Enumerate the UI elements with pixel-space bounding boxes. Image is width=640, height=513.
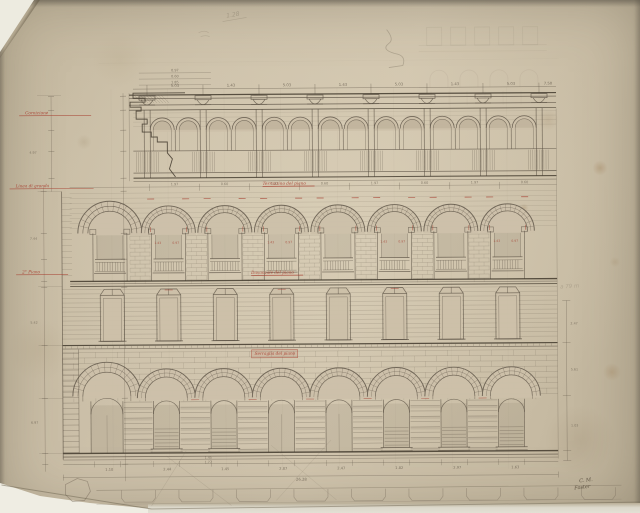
svg-text:1.82: 1.82 bbox=[395, 466, 403, 470]
svg-text:5.03: 5.03 bbox=[507, 81, 516, 86]
svg-text:1.85: 1.85 bbox=[171, 80, 179, 84]
svg-text:1.43: 1.43 bbox=[227, 83, 236, 88]
crowning-entablature bbox=[129, 93, 556, 111]
svg-text:Linea di gronda: Linea di gronda bbox=[15, 183, 50, 188]
svg-text:Cornicione: Cornicione bbox=[25, 110, 49, 115]
attic-loggia bbox=[133, 108, 556, 182]
svg-text:1.45: 1.45 bbox=[221, 467, 229, 471]
svg-text:Foster: Foster bbox=[573, 484, 591, 492]
svg-text:1.97: 1.97 bbox=[471, 181, 479, 185]
svg-text:7.50: 7.50 bbox=[544, 81, 553, 86]
svg-text:5.03: 5.03 bbox=[395, 81, 404, 86]
svg-text:1.97: 1.97 bbox=[171, 182, 179, 186]
paper-bottom-edge-line bbox=[1, 481, 640, 510]
svg-text:1.43: 1.43 bbox=[493, 239, 500, 243]
svg-text:1.43: 1.43 bbox=[267, 240, 274, 244]
svg-text:2.47: 2.47 bbox=[337, 466, 345, 470]
svg-text:6.97: 6.97 bbox=[31, 421, 38, 425]
main-arcade bbox=[70, 191, 558, 287]
svg-text:1.10: 1.10 bbox=[105, 468, 114, 472]
svg-text:0.60: 0.60 bbox=[521, 180, 529, 184]
svg-text:0.60: 0.60 bbox=[321, 181, 329, 185]
svg-text:2° Piano: 2° Piano bbox=[21, 269, 40, 274]
svg-text:1.28: 1.28 bbox=[226, 11, 240, 20]
svg-text:1.97: 1.97 bbox=[371, 181, 379, 185]
svg-text:a 79 m: a 79 m bbox=[560, 283, 580, 290]
svg-text:2.97: 2.97 bbox=[453, 466, 461, 470]
svg-text:0.97: 0.97 bbox=[171, 68, 179, 72]
svg-text:5.61: 5.61 bbox=[571, 367, 578, 371]
middle-storey bbox=[62, 287, 557, 350]
photographed-drawing: 1.28a 79 m5.031.435.031.435.031.435.037.… bbox=[0, 0, 640, 513]
svg-text:0.97: 0.97 bbox=[511, 239, 518, 243]
svg-text:0.97: 0.97 bbox=[285, 240, 292, 244]
svg-text:2.47: 2.47 bbox=[570, 321, 577, 325]
facade-elevation-drawing: 1.28a 79 m5.031.435.031.435.031.435.037.… bbox=[0, 0, 640, 513]
svg-text:1.77: 1.77 bbox=[205, 460, 212, 464]
svg-text:1.43: 1.43 bbox=[339, 82, 348, 87]
svg-text:7.44: 7.44 bbox=[30, 237, 37, 241]
svg-text:2.44: 2.44 bbox=[163, 467, 172, 471]
svg-text:1.63: 1.63 bbox=[511, 465, 519, 469]
svg-text:1.45: 1.45 bbox=[205, 456, 212, 460]
svg-text:0.97: 0.97 bbox=[398, 239, 405, 243]
cornice-section-profile bbox=[130, 93, 186, 177]
top-dimension-row: 5.031.435.031.435.031.435.037.500.970.60… bbox=[133, 66, 556, 95]
svg-text:0.60: 0.60 bbox=[221, 182, 229, 186]
svg-text:1.43: 1.43 bbox=[451, 81, 460, 86]
svg-text:Terrazzino del piano: Terrazzino del piano bbox=[263, 181, 307, 186]
svg-text:5.03: 5.03 bbox=[283, 82, 292, 87]
svg-text:1.03: 1.03 bbox=[571, 423, 578, 427]
svg-text:Davanzale del piano: Davanzale del piano bbox=[250, 270, 294, 275]
svg-text:0.60: 0.60 bbox=[421, 181, 429, 185]
svg-text:1.43: 1.43 bbox=[154, 241, 161, 245]
signature: C. M.Foster bbox=[573, 477, 594, 492]
pencil-doodle bbox=[199, 29, 404, 68]
svg-text:0.60: 0.60 bbox=[171, 74, 179, 78]
svg-text:5.42: 5.42 bbox=[30, 321, 37, 325]
svg-text:4.97: 4.97 bbox=[29, 151, 36, 155]
svg-text:2.87: 2.87 bbox=[279, 467, 287, 471]
svg-text:0.97: 0.97 bbox=[172, 241, 179, 245]
svg-text:1.43: 1.43 bbox=[380, 240, 387, 244]
